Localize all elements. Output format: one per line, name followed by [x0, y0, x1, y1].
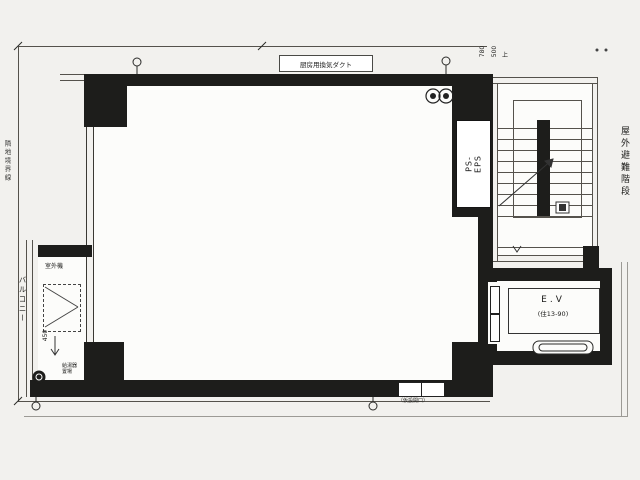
grid-marker-icon	[442, 57, 450, 65]
balcony-edge-inner	[32, 240, 33, 397]
ev-door-panel-lower	[490, 314, 500, 342]
stair-boundary-bottom-inner	[497, 255, 597, 256]
stair-boundary-right-outer	[597, 77, 598, 262]
dim-up-label: 上	[502, 50, 508, 59]
wall-opening-mullion	[421, 383, 422, 396]
water-heater-label: 給湯器 置場	[62, 364, 77, 375]
balcony-wall-top	[38, 245, 92, 257]
wall-step-line-2	[60, 80, 86, 81]
stair-center-wall	[537, 120, 550, 216]
ev-wall-top	[487, 268, 612, 281]
ev-label: E.V	[508, 295, 598, 305]
ev-capacity-label: (住13-90)	[508, 308, 598, 318]
grid-marker-icon	[133, 58, 141, 66]
dim-450-label: 450	[42, 330, 49, 341]
ev-door-panel-upper	[490, 286, 500, 314]
ev-wall-bottom	[487, 351, 612, 365]
dimension-line-left	[18, 46, 19, 402]
wall-opening-label: （仮設開口）	[398, 397, 428, 404]
column-bottom-left	[84, 342, 124, 397]
boundary-dots	[596, 49, 608, 52]
grid-marker-icon	[369, 402, 377, 410]
outdoor-unit-label: 室外機	[45, 261, 63, 270]
stair-landing-line	[497, 247, 592, 248]
stair-bottom-right-block	[583, 246, 599, 268]
site-boundary-right-outer	[621, 262, 622, 416]
wall-opening	[399, 382, 444, 397]
evac-stair-label: 屋外避難階段	[618, 126, 631, 198]
stair-tread	[497, 216, 592, 217]
site-boundary-bottom	[24, 416, 628, 417]
duct-label: 厨房用換気ダクト	[300, 59, 352, 69]
outdoor-unit-symbol	[43, 284, 81, 332]
dimension-line-top	[18, 46, 487, 47]
column-bottom-right	[452, 342, 493, 397]
dim-780-label: 780	[479, 46, 486, 57]
main-room	[93, 86, 478, 380]
grid-marker-icon	[32, 402, 40, 410]
dim-500-label: 500	[491, 46, 498, 57]
duct-label-box: 厨房用換気ダクト	[279, 55, 373, 72]
ps-eps-shaft: PS-EPS	[456, 120, 491, 208]
site-boundary-right-inner	[627, 262, 628, 416]
wall-step-line-1	[60, 74, 86, 75]
balcony-label: バルコニー	[17, 276, 28, 324]
stair-boundary-top-inner	[493, 83, 598, 84]
site-boundary-label: 隣地境界線	[2, 140, 12, 183]
wall-top	[84, 74, 493, 86]
stair-boundary-right-inner	[592, 83, 593, 262]
floor-plan: E.V (住13-90) （仮設開口） PS-EPS 厨房用換気ダクト 780 …	[0, 0, 640, 480]
stair-boundary-top-outer	[493, 77, 598, 78]
ps-eps-label: PS-EPS	[465, 148, 483, 181]
